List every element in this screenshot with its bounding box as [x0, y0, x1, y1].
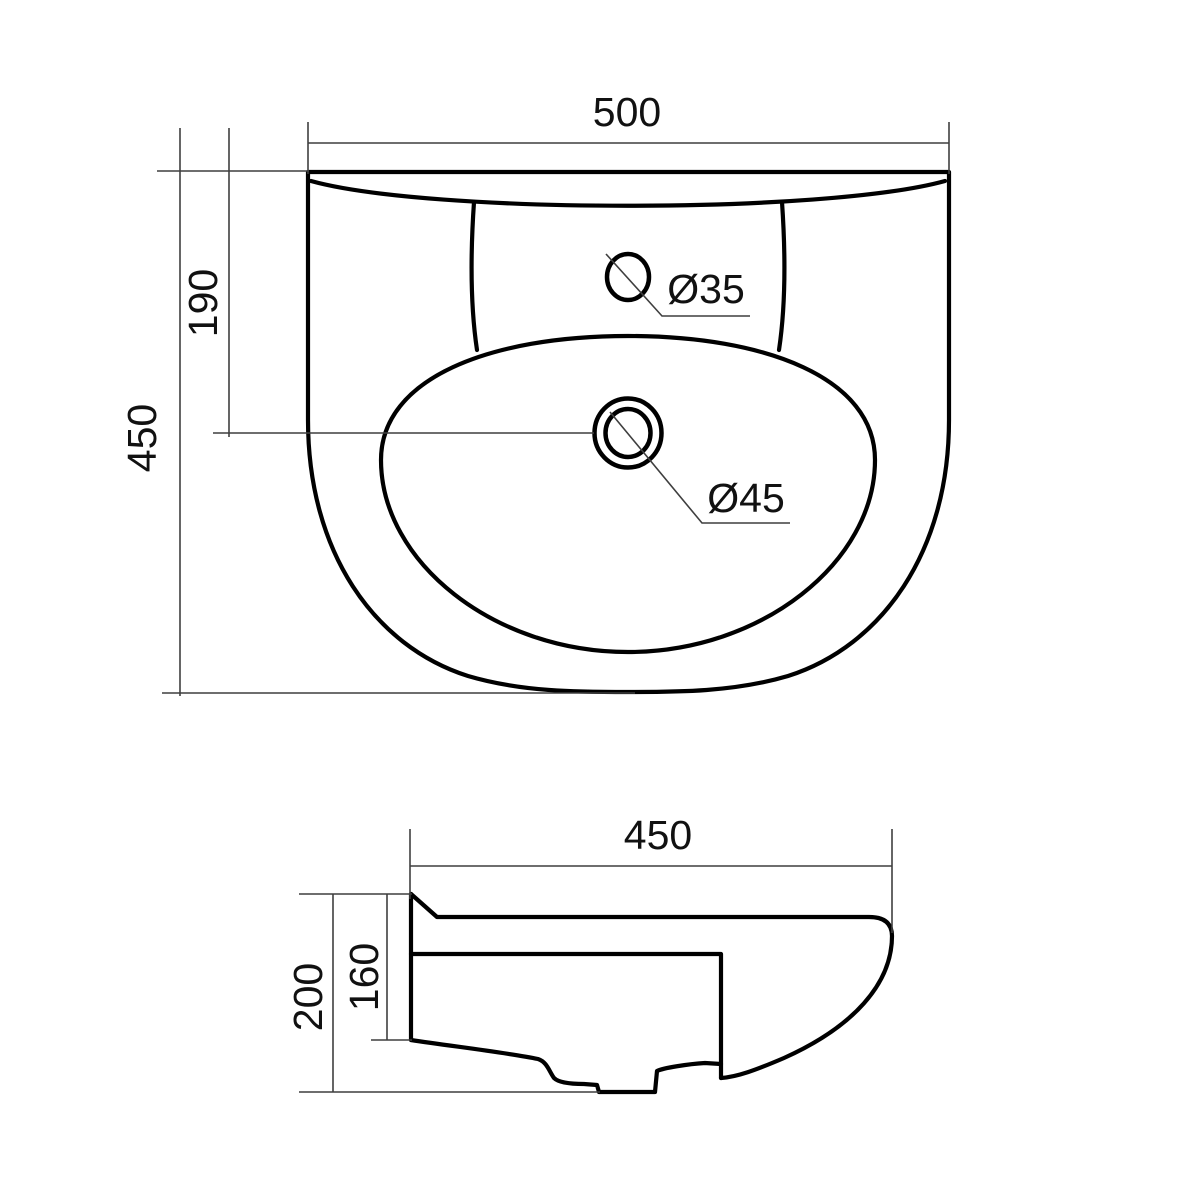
label-tap-hole-diameter: Ø35 — [667, 266, 745, 312]
basin-outer-outline — [308, 172, 949, 692]
label-drain-diameter: Ø45 — [707, 475, 785, 521]
profile-underside-trap — [411, 1040, 721, 1092]
dim-label-top-width: 500 — [593, 89, 661, 135]
drawing-sheet: 500 450 190 Ø35 Ø45 — [0, 0, 1200, 1200]
profile-inner-lines — [411, 954, 721, 1078]
deck-left-edge — [472, 202, 477, 350]
bowl-outline — [381, 336, 875, 652]
dim-label-tap-offset: 190 — [180, 269, 226, 337]
deck-back-edge — [311, 181, 945, 206]
dim-label-top-depth: 450 — [119, 404, 165, 472]
technical-drawing-canvas: 500 450 190 Ø35 Ø45 — [0, 0, 1200, 1200]
deck-right-edge — [779, 202, 784, 350]
top-view: 500 450 190 Ø35 Ø45 — [119, 89, 949, 696]
side-view: 450 200 160 — [285, 812, 892, 1092]
dim-label-inner-height: 160 — [341, 943, 387, 1011]
dim-label-height: 200 — [285, 963, 331, 1031]
dim-label-side-depth: 450 — [624, 812, 692, 858]
